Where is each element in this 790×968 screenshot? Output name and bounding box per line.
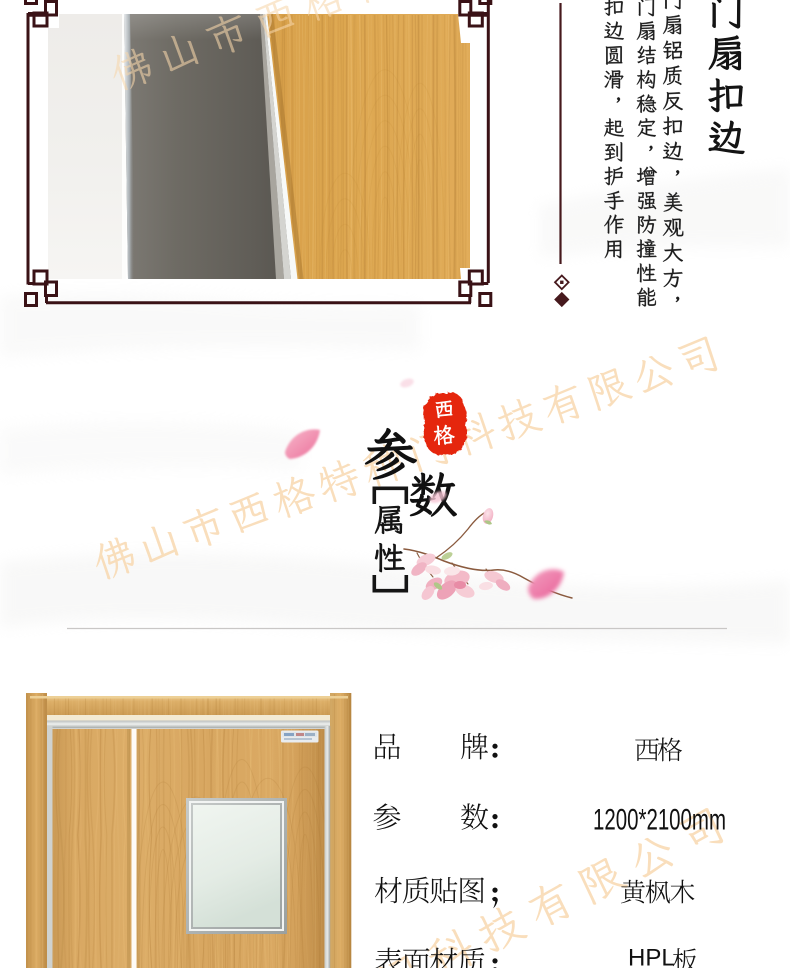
svg-text:1200*2100mm: 1200*2100mm bbox=[593, 804, 726, 837]
svg-text:HPL: HPL bbox=[628, 945, 675, 968]
